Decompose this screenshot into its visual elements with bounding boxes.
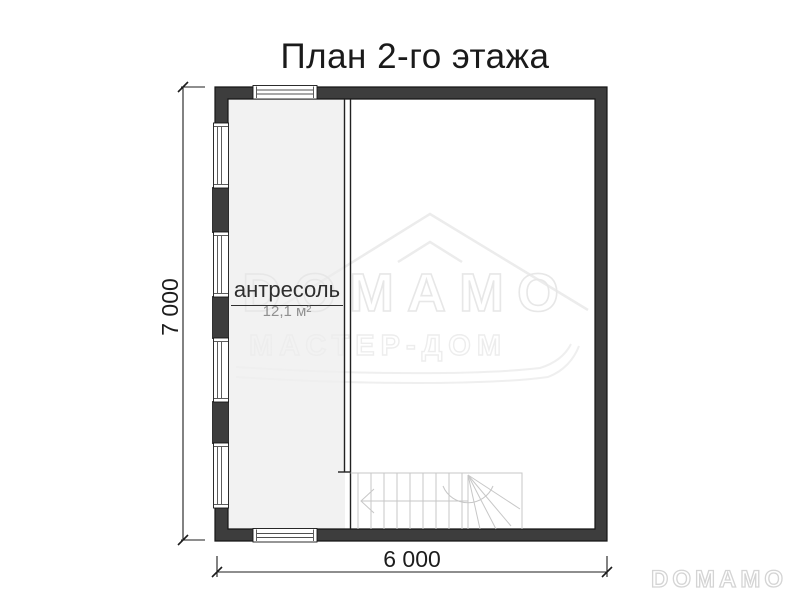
window-icon (253, 86, 317, 100)
window-icon (253, 529, 317, 543)
room-area: 12,1 м² (229, 303, 345, 320)
dimension-lines (178, 82, 612, 577)
window-icon (214, 232, 229, 297)
window-icon (214, 443, 229, 508)
page-title: План 2-го этажа (30, 37, 800, 77)
dimension-width-label: 6 000 (312, 546, 512, 573)
window-icon (214, 123, 229, 188)
room-label-wrap: антресоль (229, 277, 345, 306)
room-name: антресоль (231, 277, 343, 306)
floor-plan-page: DOMAMO МАСТЕР-ДОМ (0, 0, 800, 600)
floor-plan-drawing (0, 0, 800, 600)
stairs-icon (351, 473, 523, 529)
dimension-height-label: 7 000 (157, 207, 183, 407)
footer-brand-logo: DOMAMO (644, 566, 794, 594)
window-icon (214, 338, 229, 402)
